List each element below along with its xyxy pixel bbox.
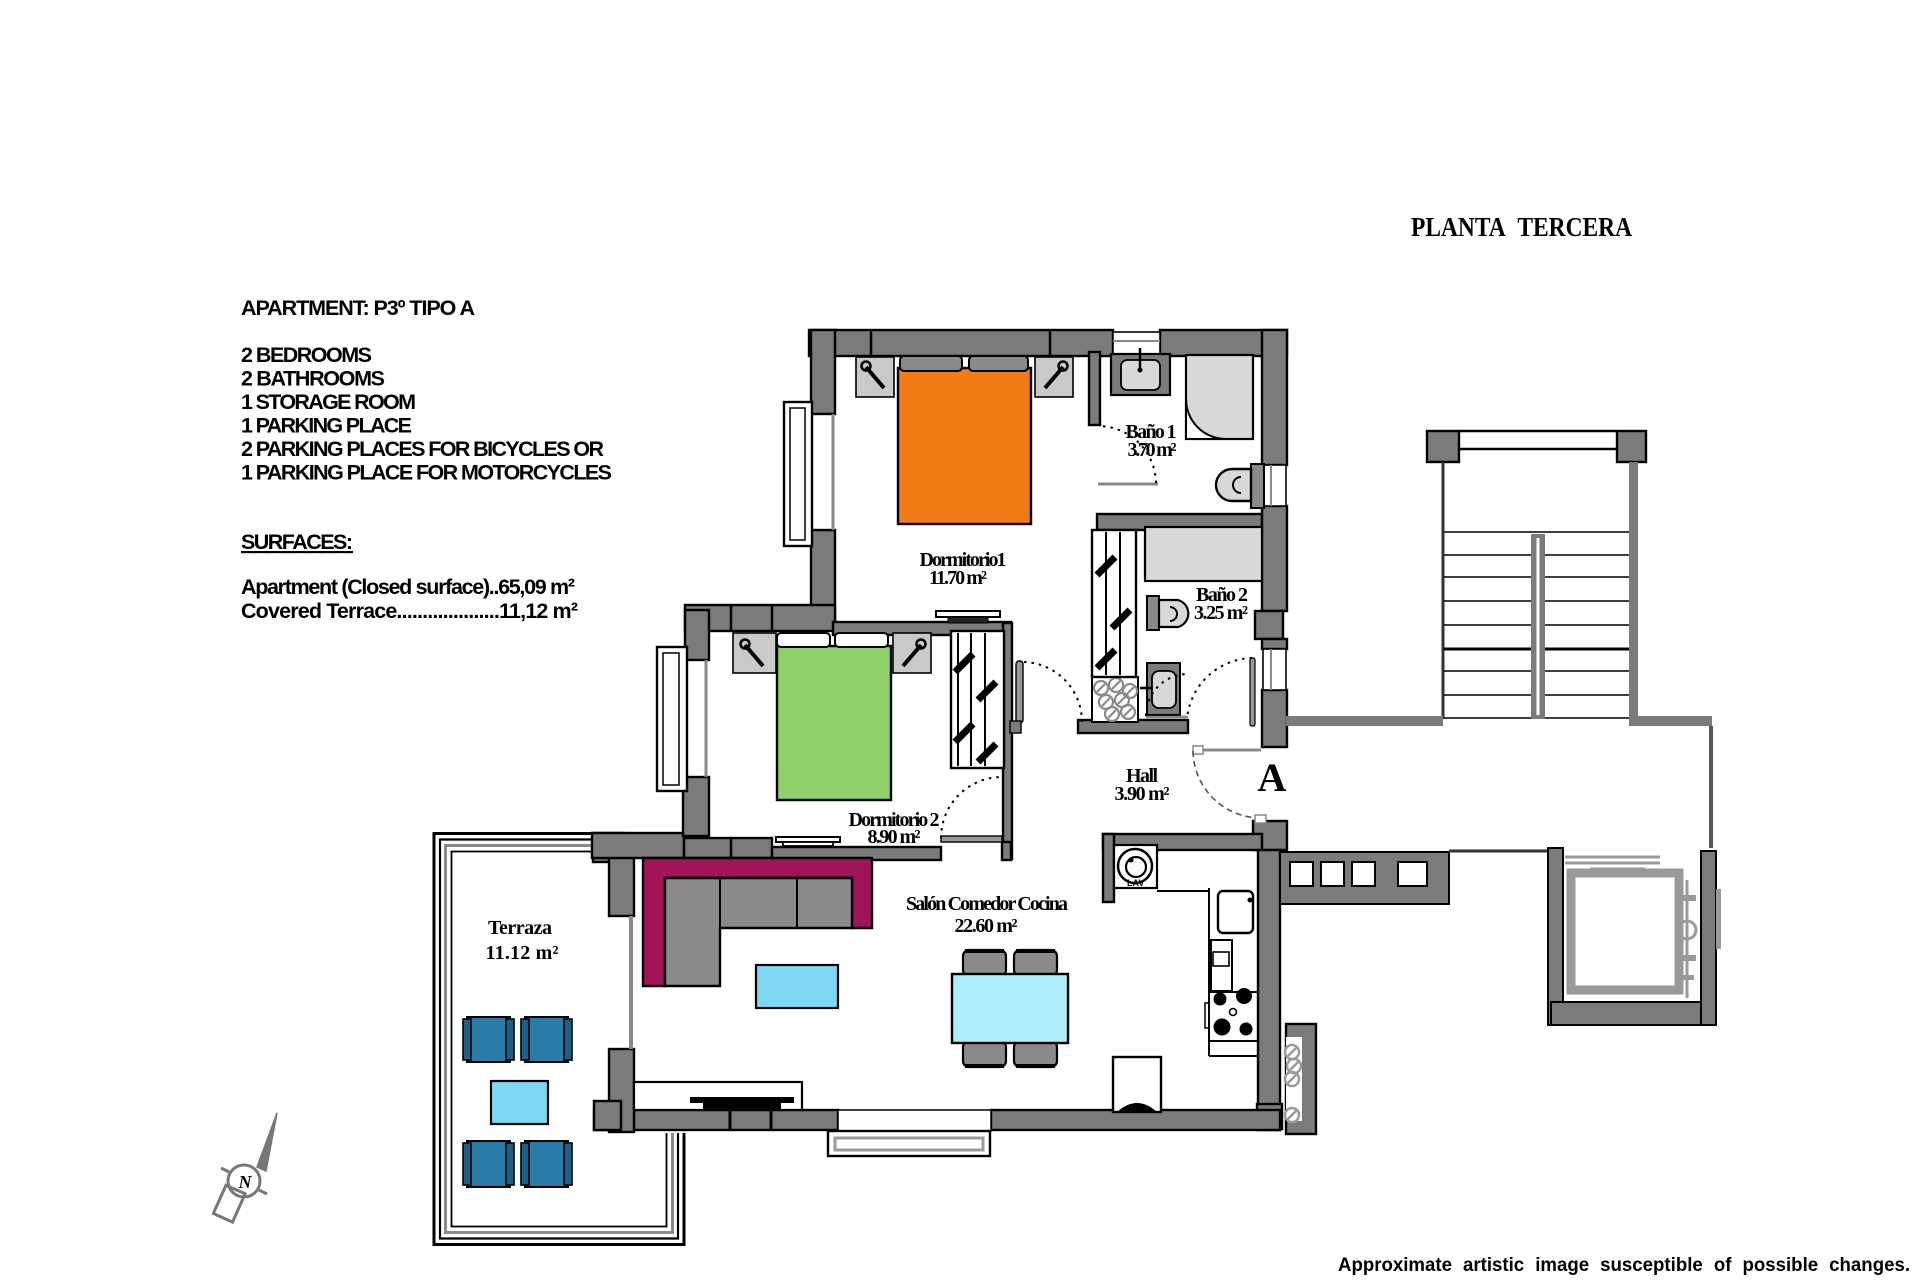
svg-text:3.25 m²: 3.25 m² (1194, 602, 1248, 624)
svg-text:22.60 m²: 22.60 m² (955, 915, 1018, 937)
svg-text:2 PARKING PLACES FOR BICYCLES: 2 PARKING PLACES FOR BICYCLES OR (241, 437, 604, 461)
svg-text:Approximate artistic image sus: Approximate artistic image susceptible o… (1338, 1255, 1910, 1276)
svg-text:SURFACES:: SURFACES: (241, 530, 353, 554)
svg-text:Salón Comedor Cocina: Salón Comedor Cocina (906, 893, 1068, 915)
svg-text:3.90 m²: 3.90 m² (1115, 783, 1170, 805)
svg-text:PLANTA TERCERA: PLANTA TERCERA (1411, 212, 1632, 242)
svg-text:1 PARKING PLACE: 1 PARKING PLACE (241, 414, 412, 438)
svg-text:11.12 m²: 11.12 m² (486, 942, 559, 964)
svg-text:APARTMENT: P3º TIPO A: APARTMENT: P3º TIPO A (241, 296, 475, 320)
svg-text:Covered Terrace...............: Covered Terrace....................11,12… (241, 599, 578, 623)
svg-text:3.70 m²: 3.70 m² (1128, 439, 1177, 461)
svg-text:11.70 m²: 11.70 m² (929, 567, 987, 589)
svg-text:2 BEDROOMS: 2 BEDROOMS (241, 343, 372, 367)
svg-text:2 BATHROOMS: 2 BATHROOMS (241, 367, 385, 391)
svg-text:Apartment (Closed surface)..65: Apartment (Closed surface)..65,09 m² (241, 575, 575, 599)
svg-text:1 PARKING PLACE FOR MOTORCYCLE: 1 PARKING PLACE FOR MOTORCYCLES (241, 461, 612, 485)
svg-text:Terraza: Terraza (488, 917, 552, 939)
svg-text:LAV: LAV (1127, 878, 1144, 888)
svg-text:1 STORAGE ROOM: 1 STORAGE ROOM (241, 390, 416, 414)
svg-text:N: N (238, 1172, 253, 1192)
svg-text:A: A (1258, 755, 1287, 800)
svg-text:8.90 m²: 8.90 m² (868, 826, 921, 848)
